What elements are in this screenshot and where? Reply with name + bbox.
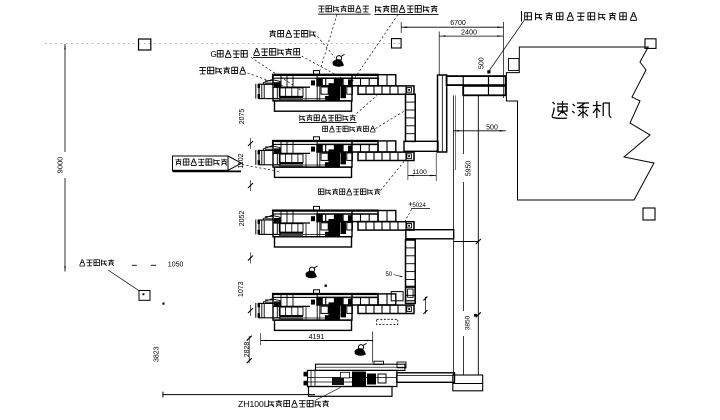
svg-text:5950: 5950: [466, 161, 473, 177]
svg-text:ZH100L: ZH100L: [238, 399, 269, 409]
svg-text:9000: 9000: [56, 157, 65, 174]
svg-text:G: G: [211, 50, 217, 59]
svg-text:50: 50: [386, 272, 393, 278]
svg-text:1050: 1050: [168, 262, 184, 269]
svg-text:2828: 2828: [244, 342, 251, 358]
svg-text:1102: 1102: [238, 153, 245, 168]
svg-text:1073: 1073: [238, 281, 245, 297]
svg-text:500: 500: [486, 125, 498, 132]
svg-text:2075: 2075: [239, 109, 246, 125]
svg-text:2400: 2400: [461, 27, 477, 36]
svg-text:4191: 4191: [309, 334, 325, 341]
svg-text:2052: 2052: [239, 211, 246, 227]
svg-text:3823: 3823: [154, 346, 161, 362]
svg-text:500: 500: [479, 57, 486, 69]
svg-text:5024: 5024: [413, 203, 427, 209]
svg-text:6700: 6700: [450, 20, 466, 27]
svg-text:3850: 3850: [464, 315, 471, 330]
svg-text:1100: 1100: [412, 169, 427, 176]
